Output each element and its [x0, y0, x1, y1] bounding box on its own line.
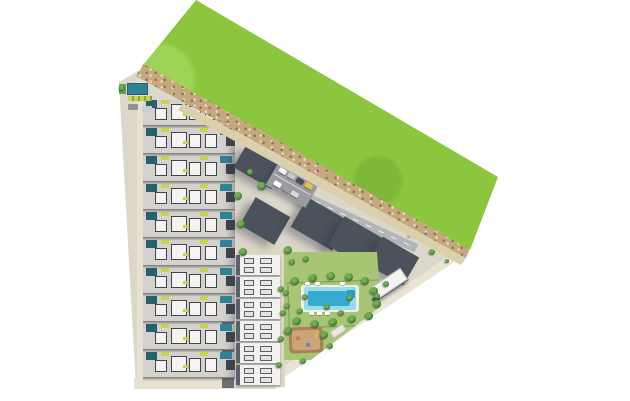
tree: [345, 273, 353, 281]
solar-panel: [183, 141, 189, 144]
roof-unit: [260, 324, 272, 330]
tree: [311, 320, 319, 328]
tree: [297, 308, 303, 314]
townhouse-row: [143, 352, 235, 378]
townhouse-row: [143, 212, 235, 238]
roof-terrace: [171, 188, 187, 204]
roof-terrace: [155, 360, 167, 372]
roof-terrace: [155, 332, 167, 344]
tree: [383, 281, 389, 287]
tree: [373, 300, 381, 308]
solar-panel: [183, 309, 189, 312]
tree: [293, 317, 301, 325]
tree: [280, 310, 286, 316]
townhouse-row: [143, 296, 235, 322]
apartment-row: [236, 255, 280, 275]
car: [128, 104, 138, 110]
townhouse-row: [143, 268, 235, 294]
roof-terrace: [205, 274, 217, 288]
roof-unit: [260, 302, 272, 308]
site-plan-render: [0, 0, 630, 401]
apartment-row: [236, 277, 280, 297]
car: [273, 180, 282, 188]
stair-core: [236, 321, 240, 341]
roof-terrace: [189, 162, 201, 176]
solar-panel: [161, 296, 169, 300]
tree: [320, 331, 328, 339]
tree: [283, 290, 289, 296]
sun-lounger: [305, 282, 310, 285]
roof-terrace: [171, 132, 187, 148]
tree: [327, 272, 335, 280]
roof-terrace: [171, 300, 187, 316]
tree: [278, 336, 284, 342]
tree: [289, 259, 295, 265]
solar-panel: [200, 156, 208, 160]
courtyard-shadow: [226, 304, 235, 314]
roof-terrace: [171, 272, 187, 288]
apartment-row: [236, 299, 280, 319]
tree: [327, 343, 333, 349]
tree: [300, 358, 306, 364]
roof-terrace: [189, 134, 201, 148]
plunge-pool: [146, 296, 157, 304]
solar-panel: [183, 197, 189, 200]
roof-terrace: [189, 330, 201, 344]
plunge-pool: [220, 324, 232, 331]
roof-terrace: [189, 190, 201, 204]
roof-unit: [244, 280, 254, 286]
entrance-hedge: [128, 96, 152, 101]
solar-panel: [161, 268, 169, 272]
solar-panel: [161, 156, 169, 160]
solar-panel: [161, 352, 169, 356]
roof-unit: [244, 346, 254, 352]
tree: [278, 286, 284, 292]
roof-unit: [244, 289, 254, 295]
tree: [338, 310, 344, 316]
courtyard-shadow: [226, 248, 235, 258]
roof-unit: [244, 302, 254, 308]
townhouse-row: [143, 240, 235, 266]
roof-terrace: [205, 358, 217, 372]
tree: [284, 327, 292, 335]
solar-panel: [200, 128, 208, 132]
solar-panel: [161, 100, 169, 104]
stair-core: [236, 365, 240, 385]
solar-panel: [183, 281, 189, 284]
roof-terrace: [171, 244, 187, 260]
solar-panel: [161, 212, 169, 216]
sun-lounger: [340, 282, 345, 285]
roof-terrace: [155, 248, 167, 260]
apartment-row: [236, 365, 280, 385]
roof-unit: [260, 355, 272, 361]
solar-panel: [183, 337, 189, 340]
roof-unit: [244, 355, 254, 361]
plunge-pool: [146, 324, 157, 332]
roof-unit: [260, 311, 272, 317]
tree: [247, 169, 253, 175]
plunge-pool: [220, 156, 232, 163]
entrance-pool: [127, 83, 148, 95]
solar-panel: [200, 212, 208, 216]
plunge-pool: [146, 352, 157, 360]
roof-unit: [260, 280, 272, 286]
roof-unit: [260, 346, 272, 352]
roof-terrace: [205, 134, 217, 148]
solar-panel: [183, 253, 189, 256]
roof-terrace: [155, 220, 167, 232]
solar-panel: [183, 169, 189, 172]
tree: [284, 246, 292, 254]
tree: [276, 362, 282, 368]
plunge-pool: [146, 212, 157, 220]
townhouse-row: [143, 324, 235, 350]
plunge-pool: [146, 268, 157, 276]
townhouse-row: [143, 156, 235, 182]
roof-unit: [244, 311, 254, 317]
plunge-pool: [146, 240, 157, 248]
tree: [239, 248, 247, 256]
stair-core: [236, 277, 240, 297]
roof-terrace: [205, 246, 217, 260]
sun-lounger: [317, 312, 322, 315]
plunge-pool: [146, 184, 157, 192]
tree: [329, 318, 337, 326]
tree: [445, 259, 449, 263]
stair-core: [236, 299, 240, 319]
roof-terrace: [155, 108, 167, 120]
playground: [289, 326, 324, 353]
stair-core: [236, 255, 240, 275]
sun-lounger: [315, 282, 320, 285]
roof-unit: [260, 333, 272, 339]
tree: [303, 256, 309, 262]
plunge-pool: [146, 128, 157, 136]
plunge-pool: [220, 296, 232, 303]
sun-lounger: [325, 312, 330, 315]
solar-panel: [161, 324, 169, 328]
solar-panel: [161, 240, 169, 244]
roof-terrace: [171, 160, 187, 176]
tree: [365, 312, 373, 320]
roof-terrace: [189, 358, 201, 372]
courtyard-shadow: [226, 332, 235, 342]
tree: [291, 277, 299, 285]
roof-unit: [244, 324, 254, 330]
roof-unit: [244, 267, 254, 273]
roof-terrace: [171, 328, 187, 344]
plunge-pool: [220, 352, 232, 359]
roof-unit: [260, 267, 272, 273]
sun-lounger: [309, 312, 314, 315]
roof-unit: [260, 377, 272, 383]
tree: [284, 303, 290, 309]
tree: [374, 293, 380, 299]
solar-panel: [200, 240, 208, 244]
roof-terrace: [205, 330, 217, 344]
apartment-row: [236, 321, 280, 341]
roof-terrace: [189, 246, 201, 260]
pool-deep-area: [308, 291, 350, 306]
tree: [302, 294, 308, 300]
plunge-pool: [220, 212, 232, 219]
roof-terrace: [155, 192, 167, 204]
tree: [237, 220, 245, 228]
apartment-row: [236, 343, 280, 363]
plunge-pool: [146, 156, 157, 164]
roof-terrace: [189, 218, 201, 232]
roof-unit: [244, 333, 254, 339]
roof-unit: [260, 258, 272, 264]
stair-core: [236, 343, 240, 363]
solar-panel: [200, 352, 208, 356]
courtyard-shadow: [226, 276, 235, 286]
solar-panel: [161, 184, 169, 188]
solar-panel: [200, 268, 208, 272]
roof-unit: [260, 289, 272, 295]
roof-terrace: [155, 304, 167, 316]
roof-unit: [244, 368, 254, 374]
roof-terrace: [205, 302, 217, 316]
townhouse-row: [143, 184, 235, 210]
plunge-pool: [220, 184, 232, 191]
tree: [324, 304, 330, 310]
roof-terrace: [205, 190, 217, 204]
tree: [309, 274, 317, 282]
roof-terrace: [205, 218, 217, 232]
roof-unit: [244, 377, 254, 383]
car: [290, 190, 299, 198]
tree: [347, 295, 353, 301]
car: [142, 106, 152, 112]
roof-unit: [244, 258, 254, 264]
roof-terrace: [189, 302, 201, 316]
tree: [119, 85, 125, 91]
roof-terrace: [171, 356, 187, 372]
courtyard-shadow: [226, 220, 235, 230]
plunge-pool: [220, 268, 232, 275]
tree: [258, 182, 266, 190]
tree: [234, 192, 242, 200]
row-shadow: [143, 377, 235, 381]
tree: [361, 277, 369, 285]
roof-terrace: [155, 276, 167, 288]
plunge-pool: [220, 240, 232, 247]
solar-panel: [161, 128, 169, 132]
roof-terrace: [155, 136, 167, 148]
solar-panel: [183, 365, 189, 368]
solar-panel: [200, 296, 208, 300]
solar-panel: [200, 184, 208, 188]
roof-terrace: [171, 216, 187, 232]
solar-panel: [183, 225, 189, 228]
roof-terrace: [155, 164, 167, 176]
solar-panel: [200, 324, 208, 328]
roof-terrace: [189, 274, 201, 288]
car: [281, 185, 290, 193]
roof-terrace: [205, 162, 217, 176]
courtyard-shadow: [226, 360, 235, 370]
roof-unit: [260, 368, 272, 374]
tree: [348, 315, 356, 323]
